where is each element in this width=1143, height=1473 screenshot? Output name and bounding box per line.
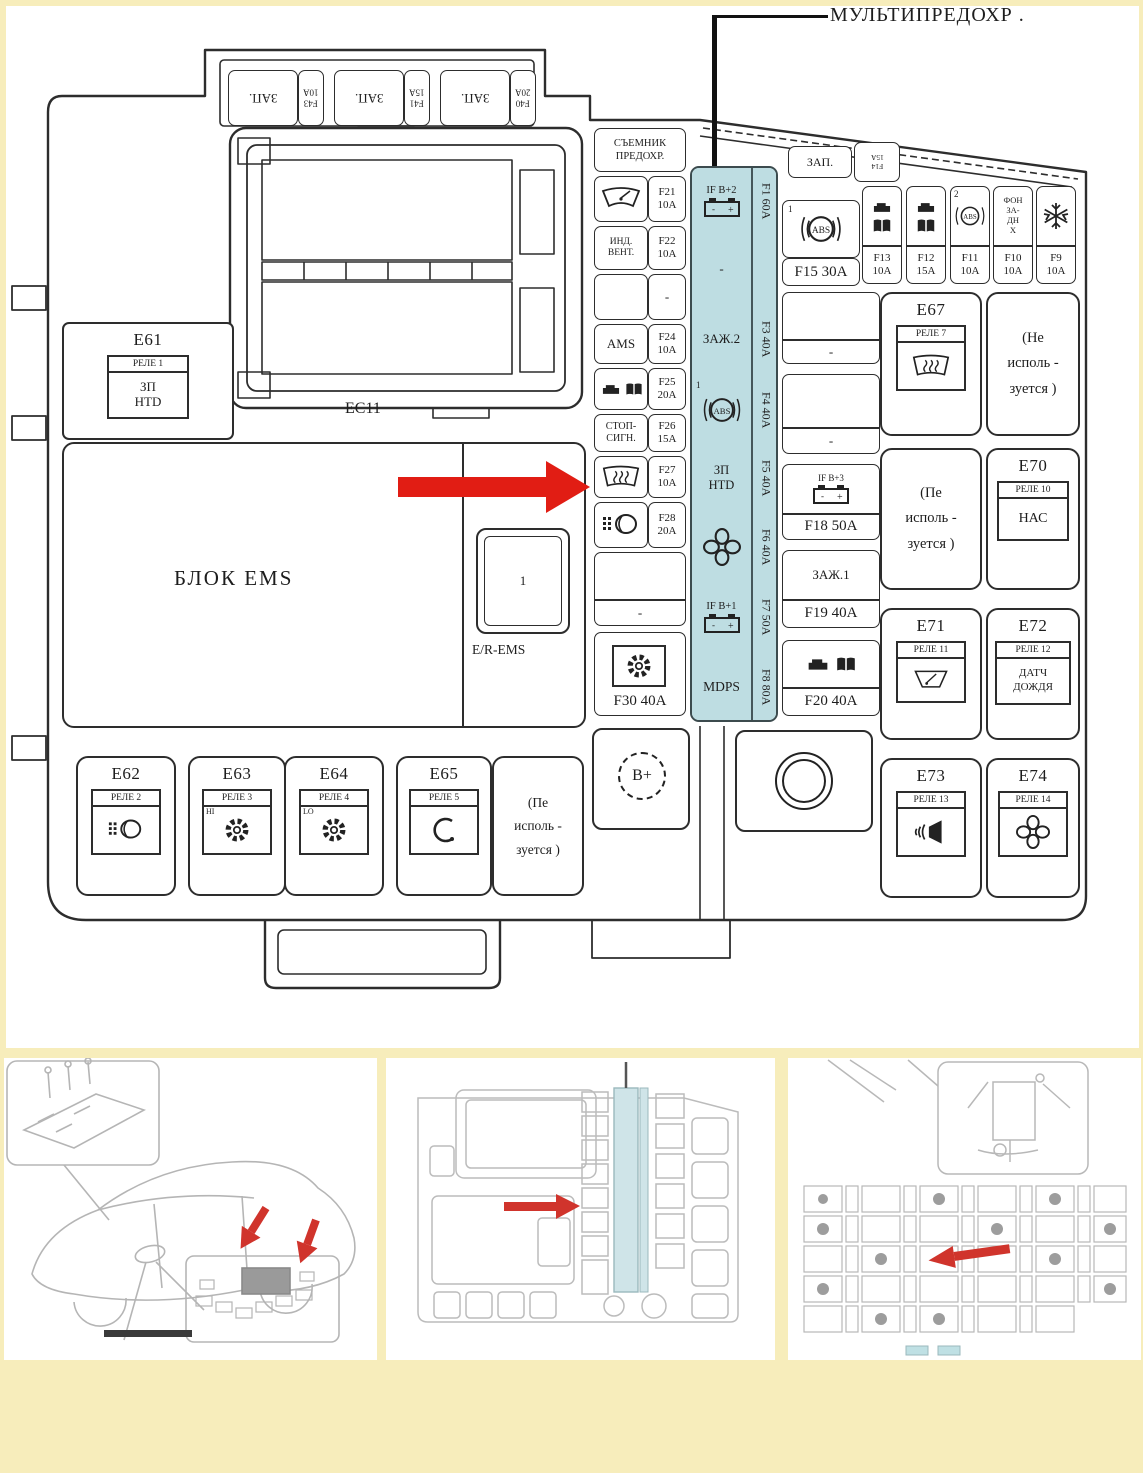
ecu-book-icon — [835, 656, 857, 672]
relay-e65: E65 РЕЛЕ 5 — [396, 756, 492, 896]
relay-e64-header: РЕЛЕ 4 — [301, 791, 367, 807]
svg-text:ABS: ABS — [963, 214, 977, 221]
fuse-f10: ФОН ЗА- ДН Х F1010A — [993, 186, 1033, 284]
top-fuse-zap-3-label: ЗАП. — [461, 90, 490, 106]
ecu-book-icon — [625, 382, 643, 396]
relay-e74-header: РЕЛЕ 14 — [1000, 793, 1066, 809]
relay-e62-header: РЕЛЕ 2 — [93, 791, 159, 807]
thumbnail-right — [788, 1058, 1141, 1360]
not-used-text: зуется ) — [908, 532, 955, 557]
multifuse-ifb1: IF B+1 -+ — [692, 584, 751, 652]
fuse-slot-empty-1 — [594, 274, 648, 320]
multifuse-strip-f4: F4 40A — [751, 374, 778, 446]
horn-contour-icon — [429, 815, 459, 845]
fuse-puller-line1: СЪЕМНИК — [614, 137, 666, 150]
fuse-f27-icon-cell — [594, 456, 648, 498]
multifuse-f4-label: F4 40A — [759, 392, 774, 428]
multifuse-f1-label: F1 60A — [759, 183, 774, 219]
fuse-f21-label: F2110A — [648, 176, 686, 222]
multifuse-column: IF B+2 -+ F1 60A - ЗАЖ.2 F3 40A 1 ABS F4… — [690, 166, 778, 722]
multifuse-zp-htd-2: HTD — [709, 478, 735, 493]
fuse-f13: F1310A — [862, 186, 902, 284]
fuse-f11-amp: 10A — [961, 265, 980, 278]
bplus-label: B+ — [632, 767, 652, 785]
fan-icon — [1016, 815, 1050, 849]
top-fuse-strip-2: F4115A — [404, 70, 430, 126]
fuse-f18-label: F18 50A — [805, 518, 858, 535]
ecu-book-icon — [872, 218, 892, 233]
fuse-f24-amp: 10A — [658, 344, 677, 357]
right-zap-fuse: F1415A — [854, 142, 900, 182]
fuse-f21-amp: 10A — [658, 199, 677, 212]
fuse-f12-id: F12 — [917, 252, 934, 265]
relay-e65-header: РЕЛЕ 5 — [411, 791, 477, 807]
multifuse-ifb1-label: IF B+1 — [706, 601, 736, 612]
multifuse-f5-label: F5 40A — [759, 460, 774, 496]
svg-text:ABS: ABS — [713, 406, 730, 416]
fuse-f24-icon-cell: AMS — [594, 324, 648, 364]
top-fuse-zap-2-label: ЗАП. — [355, 90, 384, 106]
fuse-f22-text2: ВЕНТ. — [608, 248, 634, 259]
fuse-f25-icon-cell — [594, 368, 648, 410]
fuse-f13-id: F13 — [873, 252, 890, 265]
relay-e72-body-1: ДАТЧ — [1019, 667, 1047, 681]
not-used-bottom: (Пе исполь - зуется ) — [492, 756, 584, 896]
ems-sub-label: E/R-EMS — [472, 642, 525, 658]
pointer-arrow-icon — [504, 1194, 580, 1219]
fuse-f19-label: F19 40A — [805, 605, 858, 622]
fuse-f10-id: F10 — [1004, 252, 1021, 265]
fuse-f11: 2 ABS F1110A — [950, 186, 990, 284]
svg-text:-: - — [712, 204, 715, 214]
top-fuse-2-id: F41 — [410, 99, 424, 109]
not-used-text: исполь - — [514, 814, 562, 838]
right-zap-label: ЗАП. — [807, 155, 833, 170]
top-fuse-zap-3: ЗАП. — [440, 70, 510, 126]
engine-icon — [600, 382, 622, 397]
fuse-f27-id: F27 — [658, 464, 675, 477]
svg-text:+: + — [728, 205, 734, 216]
top-fuse-zap-2: ЗАП. — [334, 70, 404, 126]
fuse-f26-label: F2615A — [648, 414, 686, 452]
relay-e63: E63 РЕЛЕ 3 HI — [188, 756, 286, 896]
relay-e73: E73 РЕЛЕ 13 — [880, 758, 982, 898]
callout-arrow-icon — [712, 15, 717, 175]
relay-e74: E74 РЕЛЕ 14 — [986, 758, 1080, 898]
relay-e74-id: E74 — [1019, 766, 1048, 786]
fuse-f21-id: F21 — [658, 186, 675, 199]
fuse-f27-amp: 10A — [658, 477, 677, 490]
battery-icon: -+ — [704, 196, 740, 218]
relay-e70-header: РЕЛЕ 10 — [999, 483, 1067, 499]
not-used-text: зуется ) — [516, 838, 560, 862]
abs-footnote: 1 — [788, 204, 793, 214]
fuse-f9-id: F9 — [1050, 252, 1062, 265]
relay-e61-header: РЕЛЕ 1 — [109, 357, 187, 373]
relay-e72: E72 РЕЛЕ 12 ДАТЧ ДОЖДЯ — [986, 608, 1080, 740]
fuse-f28-id: F28 — [658, 512, 675, 525]
pointer-arrow-icon — [398, 477, 546, 497]
fuse-f28-amp: 20A — [658, 525, 677, 538]
multifuse-zp-htd: ЗП HTD — [692, 446, 751, 512]
svg-text:+: + — [728, 621, 734, 632]
battery-icon: -+ — [811, 483, 851, 505]
multifuse-ign2: ЗАЖ.2 — [692, 304, 751, 376]
not-used-text: зуется ) — [1010, 377, 1057, 402]
fuse-puller-box: СЪЕМНИК ПРЕДОХР. — [594, 128, 686, 172]
multifuse-strip-f8: F8 80A — [751, 650, 778, 722]
relay-e63-tag: HI — [206, 807, 214, 816]
not-used-text: исполь - — [1007, 351, 1058, 376]
not-used-mid: (Пе исполь - зуется ) — [880, 448, 982, 590]
gear-icon — [624, 651, 654, 681]
fuse-f25-id: F25 — [658, 376, 675, 389]
horn-icon — [913, 818, 949, 846]
multifuse-strip-f3: F3 40A — [751, 304, 778, 374]
interior-fusebox-mini — [788, 1058, 1141, 1360]
top-fuse-zap-1: ЗАП. — [228, 70, 298, 126]
relay-e64: E64 РЕЛЕ 4 LO — [284, 756, 384, 896]
dash-label: - — [638, 605, 642, 621]
fuse-f26-id: F26 — [658, 420, 675, 433]
ems-slot-number: 1 — [520, 573, 527, 589]
multifuse-mdps-label: MDPS — [703, 679, 740, 695]
mini-highlight-tick — [906, 1346, 928, 1355]
dash-label: - — [719, 261, 723, 277]
relay-e73-id: E73 — [917, 766, 946, 786]
fuse-f30-box: F30 40A — [594, 632, 686, 716]
relay-e65-id: E65 — [430, 764, 459, 784]
gear-icon — [222, 815, 252, 845]
right-zap-box: ЗАП. — [788, 146, 852, 178]
bplus-terminal-box: B+ — [592, 728, 690, 830]
svg-text:-: - — [821, 491, 824, 501]
fuse-f30-label: F30 40A — [614, 693, 667, 710]
multifuse-strip-f5: F5 40A — [751, 446, 778, 510]
headlamp-washer-icon — [601, 512, 641, 538]
top-fuse-strip-3: F4020A — [510, 70, 536, 126]
multifuse-f8-label: F8 80A — [759, 669, 774, 705]
relay-e64-id: E64 — [320, 764, 349, 784]
fuse-puller-line2: ПРЕДОХР. — [616, 150, 665, 163]
fuse-f20: F20 40A — [782, 640, 880, 716]
relay-e64-tag: LO — [303, 807, 314, 816]
rear-defrost-icon — [600, 464, 642, 490]
snowflake-icon — [1041, 201, 1071, 231]
abs-footnote: 1 — [696, 380, 701, 390]
engine-icon — [805, 656, 831, 673]
relay-e72-body-2: ДОЖДЯ — [1013, 681, 1053, 695]
multifuse-mdps: MDPS — [692, 650, 751, 722]
pointer-arrow-icon — [927, 1238, 1011, 1271]
relay-e72-id: E72 — [1019, 616, 1048, 636]
fan-icon — [703, 528, 741, 566]
fuse-f11-id: F11 — [962, 252, 979, 265]
fuse-f20-label: F20 40A — [805, 693, 858, 710]
engine-icon — [871, 200, 893, 215]
svg-text:+: + — [837, 492, 843, 503]
relay-e72-header: РЕЛЕ 12 — [997, 643, 1069, 659]
fuse-f22-label: F2210A — [648, 226, 686, 270]
not-used-text: (Не — [1022, 326, 1044, 351]
multifuse-ifb2: IF B+2 -+ — [692, 168, 751, 236]
relay-e61-body-1: ЗП — [140, 380, 156, 395]
ems-label: БЛОК EMS — [174, 566, 293, 591]
fuse-f25-amp: 20A — [658, 389, 677, 402]
multifuse-f7-label: F7 50A — [759, 599, 774, 635]
multifuse-ign2-label: ЗАЖ.2 — [703, 331, 740, 347]
thumb-caption-bar — [104, 1330, 192, 1337]
stud-box — [735, 730, 873, 832]
relay-e71-header: РЕЛЕ 11 — [898, 643, 964, 659]
relay-e70: E70 РЕЛЕ 10 НАС — [986, 448, 1080, 590]
fuse-slot-empty-1-dash: - — [648, 274, 686, 320]
thumbnail-middle — [386, 1058, 775, 1360]
multifuse-strip-empty — [751, 234, 778, 304]
fuse-f22-id: F22 — [658, 235, 675, 248]
fuse-f19: ЗАЖ.1 F19 40A — [782, 550, 880, 628]
fuse-f22-icon-cell: ИНД. ВЕНТ. — [594, 226, 648, 270]
fuse-slot-empty-2: - — [594, 552, 686, 626]
multifuse-f6-label: F6 40A — [759, 529, 774, 565]
mini-multifuse-strip — [640, 1088, 648, 1292]
not-used-text: исполь - — [905, 506, 956, 531]
relay-e63-id: E63 — [223, 764, 252, 784]
fuse-f13-amp: 10A — [873, 265, 892, 278]
dash-label: - — [829, 344, 833, 360]
fuse-f22-amp: 10A — [658, 248, 677, 261]
page-title: МУЛЬТИПРЕДОХР . — [830, 4, 1130, 27]
headlamp-washer-icon — [107, 817, 145, 843]
fuse-f14-amp: 15A — [871, 153, 884, 162]
dash-label: - — [829, 433, 833, 449]
relay-e71: E71 РЕЛЕ 11 — [880, 608, 982, 740]
relay-e61: E61 РЕЛЕ 1 ЗП HTD — [62, 322, 234, 440]
relay-e61-id: E61 — [134, 330, 163, 350]
gear-icon — [319, 815, 349, 845]
fuse-f26-amp: 15A — [658, 433, 677, 446]
multifuse-abs: 1 ABS — [692, 374, 751, 448]
multifuse-strip-f1: F1 60A — [751, 168, 778, 234]
dash-label: - — [665, 289, 669, 305]
relay-e61-body-2: HTD — [135, 395, 162, 410]
fuse-f28-label: F2820A — [648, 502, 686, 548]
rear-defrost-icon — [910, 353, 952, 379]
fuse-f19-text: ЗАЖ.1 — [812, 567, 849, 583]
bolt-circle-icon — [775, 752, 833, 810]
fuse-f18-text: IF B+3 — [818, 473, 844, 483]
multifuse-ifb2-label: IF B+2 — [706, 185, 736, 196]
relay-e67: E67 РЕЛЕ 7 — [880, 292, 982, 436]
fuse-f14-id: F14 — [871, 162, 883, 171]
relay-e62: E62 РЕЛЕ 2 — [76, 756, 176, 896]
abs-icon: ABS — [698, 393, 746, 427]
mini-multifuse-highlight — [614, 1088, 638, 1292]
fuse-f27-label: F2710A — [648, 456, 686, 498]
fuse-f24-id: F24 — [658, 331, 675, 344]
wiper-icon — [599, 186, 643, 212]
wiper-icon — [912, 666, 950, 694]
fuse-f22-text1: ИНД. — [610, 237, 633, 248]
fuse-f26-text1: СТОП- — [606, 421, 636, 433]
relay-e71-id: E71 — [917, 616, 946, 636]
mini-highlight-tick — [938, 1346, 960, 1355]
relay-e62-id: E62 — [112, 764, 141, 784]
fuse-f26-text2: СИГН. — [606, 433, 635, 445]
fuse-f15-icon-cell: 1 ABS — [782, 200, 860, 258]
thumbnail-left — [4, 1058, 377, 1360]
fuse-f10-text4: Х — [1010, 226, 1016, 236]
engine-fusebox-mini — [386, 1058, 775, 1360]
relay-e70-body: НАС — [1019, 511, 1048, 527]
bolt-circle-inner — [782, 759, 826, 803]
top-fuse-strip-1: F4310A — [298, 70, 324, 126]
connector-label: EC11 — [345, 400, 381, 418]
ecu-book-icon — [916, 218, 936, 233]
multifuse-zp-htd-1: ЗП — [714, 463, 729, 478]
multifuse-fan — [692, 510, 751, 586]
relay-e67-header: РЕЛЕ 7 — [898, 327, 964, 343]
bplus-terminal: B+ — [618, 752, 666, 800]
midright-empty-1: - — [782, 292, 880, 364]
ems-slot: 1 — [476, 528, 570, 634]
top-fuse-zap-1-label: ЗАП. — [249, 90, 278, 106]
relay-e73-header: РЕЛЕ 13 — [898, 793, 964, 809]
abs-icon: ABS — [951, 202, 989, 230]
relay-e70-id: E70 — [1019, 456, 1048, 476]
relay-e67-id: E67 — [917, 300, 946, 320]
multifuse-f3-label: F3 40A — [759, 321, 774, 357]
top-fuse-1-amp: 10A — [303, 88, 319, 98]
fuse-f15-text: F15 30A — [795, 264, 848, 281]
callout-line-horizontal — [714, 15, 828, 18]
midright-empty-2: - — [782, 374, 880, 454]
relay-e63-header: РЕЛЕ 3 — [204, 791, 270, 807]
multifuse-strip-f6: F6 40A — [751, 510, 778, 584]
fuse-f24-label: F2410A — [648, 324, 686, 364]
fuse-f10-amp: 10A — [1004, 265, 1023, 278]
fuse-f21-icon-cell — [594, 176, 648, 222]
battery-icon: -+ — [704, 612, 740, 634]
fuse-f26-icon-cell: СТОП- СИГН. — [594, 414, 648, 452]
fuse-f30-icon-cell — [612, 645, 666, 687]
fuse-f15-label: F15 30A — [782, 258, 860, 286]
multifuse-strip-f7: F7 50A — [751, 584, 778, 650]
car-location-sketch — [4, 1058, 377, 1360]
fuse-f12-amp: 15A — [917, 265, 936, 278]
fuse-f24-text: AMS — [607, 336, 635, 352]
fuse-f28-icon-cell — [594, 502, 648, 548]
fuse-f9-amp: 10A — [1047, 265, 1066, 278]
svg-text:ABS: ABS — [812, 226, 830, 236]
fuse-f9: F910A — [1036, 186, 1076, 284]
top-fuse-3-amp: 20A — [515, 88, 531, 98]
not-used-text: (Пе — [528, 791, 548, 815]
multifuse-empty: - — [692, 234, 751, 306]
engine-icon — [915, 200, 937, 215]
fuse-f12: F1215A — [906, 186, 946, 284]
not-used-right-top: (Не исполь - зуется ) — [986, 292, 1080, 436]
fuse-f25-label: F2520A — [648, 368, 686, 410]
svg-text:-: - — [712, 620, 715, 630]
not-used-text: (Пе — [920, 481, 942, 506]
pointer-arrow-head — [546, 461, 590, 513]
top-fuse-1-id: F43 — [304, 99, 318, 109]
fuse-f18: IF B+3 -+ F18 50A — [782, 464, 880, 540]
top-fuse-2-amp: 15A — [409, 88, 425, 98]
top-fuse-3-id: F40 — [516, 99, 530, 109]
abs-icon: ABS — [795, 211, 847, 247]
